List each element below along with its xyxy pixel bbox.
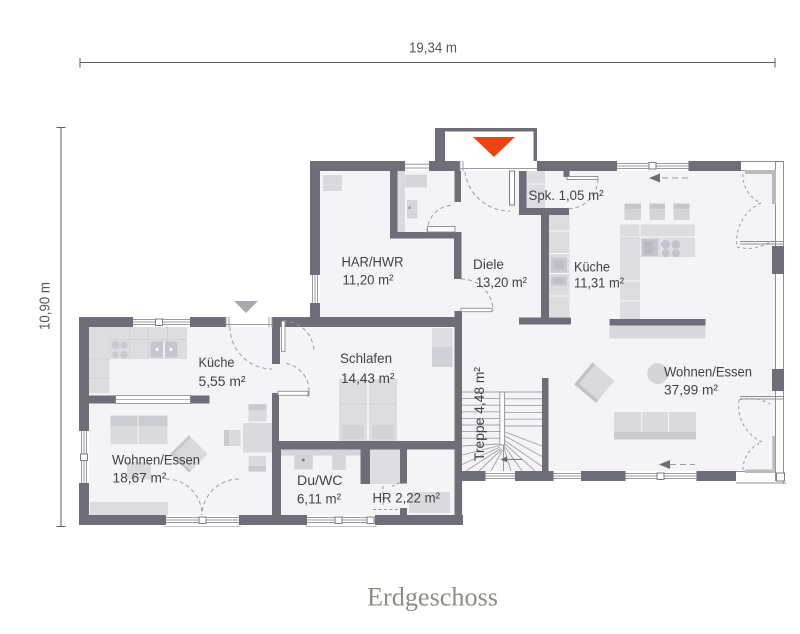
svg-text:Wohnen/Essen: Wohnen/Essen: [664, 365, 752, 381]
svg-text:Wohnen/Essen: Wohnen/Essen: [112, 453, 200, 469]
svg-text:Schlafen: Schlafen: [340, 351, 392, 367]
svg-text:Küche: Küche: [199, 355, 235, 371]
svg-text:11,31 m²: 11,31 m²: [574, 276, 624, 292]
svg-text:Du/WC: Du/WC: [297, 473, 343, 489]
svg-text:19,34 m: 19,34 m: [409, 41, 457, 57]
svg-text:10,90 m: 10,90 m: [38, 282, 54, 330]
svg-text:HAR/HWR: HAR/HWR: [342, 255, 404, 271]
svg-text:Diele: Diele: [473, 257, 504, 273]
svg-text:37,99 m²: 37,99 m²: [664, 383, 718, 399]
svg-text:HR 2,22 m²: HR 2,22 m²: [373, 491, 441, 507]
svg-text:Küche: Küche: [574, 260, 610, 276]
svg-text:5,55 m²: 5,55 m²: [199, 374, 246, 390]
svg-text:13,20 m²: 13,20 m²: [476, 275, 527, 291]
svg-text:Spk. 1,05 m²: Spk. 1,05 m²: [529, 188, 604, 204]
svg-text:6,11 m²: 6,11 m²: [297, 492, 341, 508]
svg-text:18,67 m²: 18,67 m²: [113, 471, 167, 487]
svg-text:11,20 m²: 11,20 m²: [343, 273, 394, 289]
svg-text:14,43 m²: 14,43 m²: [341, 371, 395, 387]
svg-text:Erdgeschoss: Erdgeschoss: [367, 583, 498, 612]
svg-text:Treppe 4,48 m²: Treppe 4,48 m²: [472, 367, 488, 461]
